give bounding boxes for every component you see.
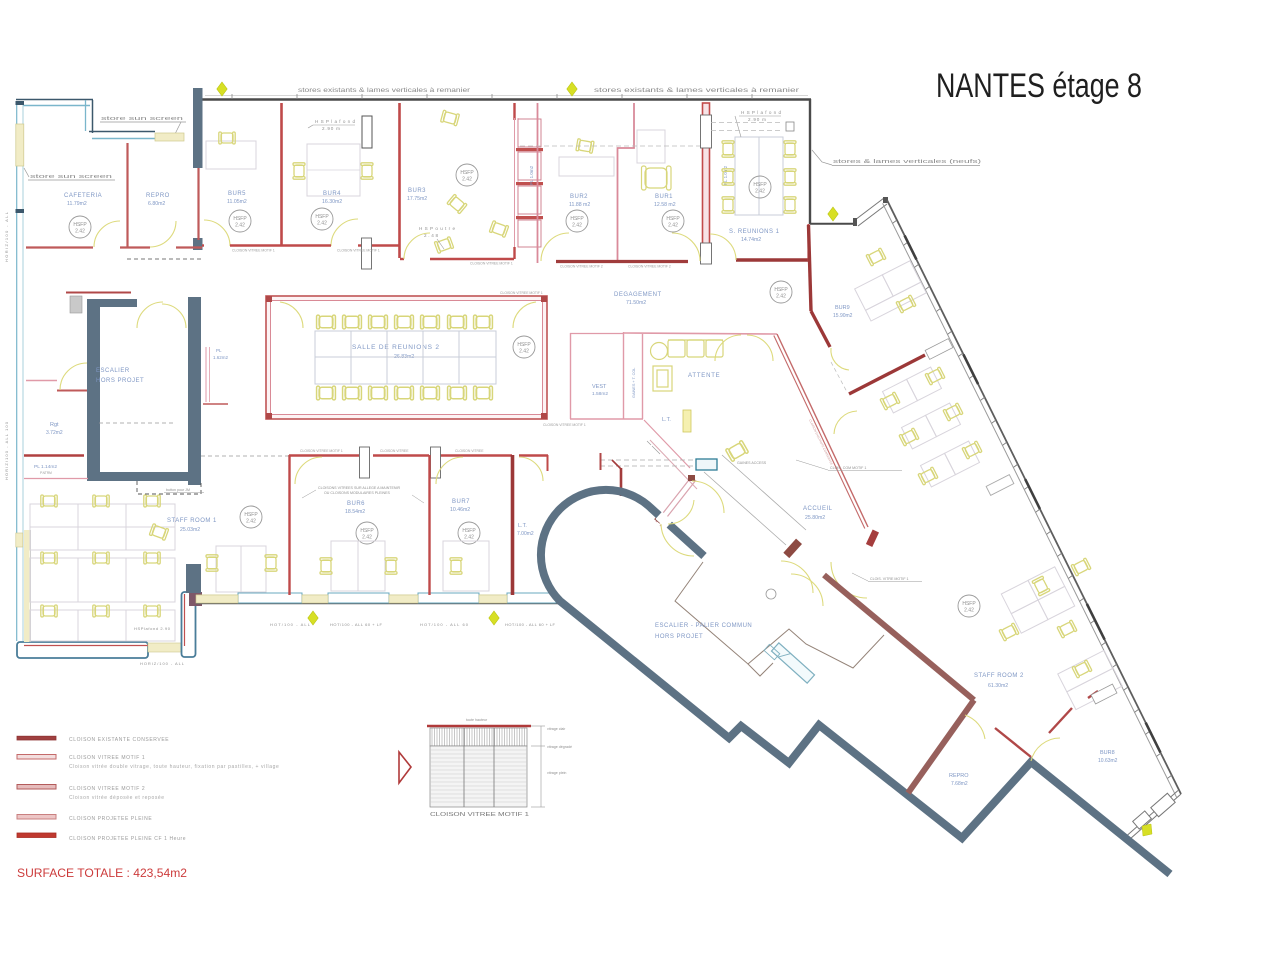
svg-text:HSPlafond 2.90: HSPlafond 2.90 [134,626,171,631]
svg-text:S. REUNIONS 1: S. REUNIONS 1 [729,229,780,235]
svg-text:61.30m2: 61.30m2 [988,683,1008,689]
svg-text:vitrage plein: vitrage plein [547,771,566,775]
svg-text:HOT/100 - ALL 60 + LF: HOT/100 - ALL 60 + LF [330,622,383,627]
svg-text:BUR9: BUR9 [835,305,850,311]
svg-text:REPRO: REPRO [146,193,170,199]
svg-text:CLOISON VITREE: CLOISON VITREE [380,449,409,453]
svg-text:1.62m2: 1.62m2 [213,355,229,360]
svg-text:PL: PL [216,348,222,353]
svg-text:CLOISON VITREE MOTIF 1: CLOISON VITREE MOTIF 1 [337,249,380,253]
svg-text:1.58m2: 1.58m2 [592,391,608,397]
svg-text:16.30m2: 16.30m2 [322,199,342,205]
svg-text:store sun screen: store sun screen [30,174,112,180]
svg-text:CLOISON VITREE MOTIF 2: CLOISON VITREE MOTIF 2 [560,265,603,269]
svg-text:15.90m2: 15.90m2 [833,313,853,319]
svg-text:STAFF ROOM 1: STAFF ROOM 1 [167,518,217,524]
svg-text:CLOISON EXISTANTE CONSERVEE: CLOISON EXISTANTE CONSERVEE [69,737,169,743]
svg-text:14.74m2: 14.74m2 [741,237,761,243]
svg-text:BUR5: BUR5 [228,191,246,197]
svg-text:Cloison vitrée déposée et repo: Cloison vitrée déposée et reposée [69,795,165,801]
svg-text:CLOISON VITREE: CLOISON VITREE [455,449,484,453]
svg-text:vitrage clair: vitrage clair [547,727,566,731]
svg-text:HOT/100 - ALL: HOT/100 - ALL [270,622,311,627]
svg-text:CLOISON VITREE MOTIF 1: CLOISON VITREE MOTIF 1 [232,249,275,253]
svg-text:25.03m2: 25.03m2 [180,527,200,533]
svg-text:BUR3: BUR3 [408,188,426,194]
svg-text:toute hauteur: toute hauteur [466,718,488,722]
svg-text:PL 1.14m2: PL 1.14m2 [34,464,57,470]
svg-text:CLOISON VITREE MOTIF 2: CLOISON VITREE MOTIF 2 [69,786,145,792]
svg-text:11.88 m2: 11.88 m2 [569,202,590,208]
svg-text:VEST: VEST [592,384,607,390]
svg-text:stores existants & lames verti: stores existants & lames verticales à re… [298,88,470,94]
svg-text:GAINES ACCESS: GAINES ACCESS [737,461,767,465]
svg-text:CLOISON VITREE MOTIF 1: CLOISON VITREE MOTIF 1 [500,291,543,295]
svg-text:BUR6: BUR6 [347,501,365,507]
svg-text:stores existants & lames verti: stores existants & lames verticales à re… [594,88,799,94]
svg-text:12.58 m2: 12.58 m2 [654,202,676,208]
svg-text:CLOISON VITREE MOTIF 1: CLOISON VITREE MOTIF 1 [69,755,145,761]
svg-text:11.05m2: 11.05m2 [227,199,247,205]
svg-text:HSPoutre: HSPoutre [419,226,455,231]
svg-text:CLOISONS VITREES SUR ALLEGE A: CLOISONS VITREES SUR ALLEGE A MAINTENIR [318,486,400,490]
svg-text:BUR7: BUR7 [452,499,470,505]
svg-text:HSPlafond: HSPlafond [741,110,781,115]
svg-text:CLOISON VITREE MOTIF 1: CLOISON VITREE MOTIF 1 [430,812,529,818]
svg-text:Cloison vitrée double vitrage,: Cloison vitrée double vitrage, toute hau… [69,764,279,770]
svg-text:REPRO: REPRO [949,773,969,779]
svg-text:7.68m2: 7.68m2 [951,781,968,787]
svg-text:BUR8: BUR8 [1100,750,1115,756]
svg-text:HORS PROJET: HORS PROJET [655,634,703,640]
svg-text:CLOISON VITREE MOTIF 1: CLOISON VITREE MOTIF 1 [543,423,586,427]
svg-text:stores & lames verticales (neu: stores & lames verticales (neufs) [833,159,981,165]
svg-text:Rgt: Rgt [50,422,59,428]
svg-text:6.80m2: 6.80m2 [148,201,165,207]
svg-text:ESCALIER - PALIER COMMUN: ESCALIER - PALIER COMMUN [655,623,752,629]
svg-text:HOT/100 - ALL 60 + LF: HOT/100 - ALL 60 + LF [505,622,556,627]
svg-text:18.54m2: 18.54m2 [345,509,365,515]
svg-text:11.79m2: 11.79m2 [67,201,87,207]
svg-text:10.63m2: 10.63m2 [1098,758,1118,764]
svg-text:CLOISON VITREE MOTIF 2: CLOISON VITREE MOTIF 2 [628,265,671,269]
svg-text:store sun screen: store sun screen [101,116,183,122]
svg-text:NANTES étage 8: NANTES étage 8 [936,67,1142,105]
svg-text:vitrage dégradé: vitrage dégradé [547,745,572,749]
svg-text:CLOISON VITREE MOTIF 1: CLOISON VITREE MOTIF 1 [300,449,343,453]
svg-text:PL 1.0m2: PL 1.0m2 [529,165,534,185]
svg-text:BUR1: BUR1 [655,194,673,200]
svg-text:CLOIS. VITRE MOTIF 1: CLOIS. VITRE MOTIF 1 [870,577,909,581]
svg-text:BUR2: BUR2 [570,194,588,200]
svg-text:button pour JM: button pour JM [166,488,190,492]
svg-text:3.72m2: 3.72m2 [46,430,63,436]
svg-text:OU CLOISONS MODULAIRES PLEINES: OU CLOISONS MODULAIRES PLEINES [324,491,391,495]
svg-text:HSPlafond: HSPlafond [315,119,355,124]
svg-text:17.75m2: 17.75m2 [407,196,427,202]
svg-text:CLOISON VITREE MOTIF 1: CLOISON VITREE MOTIF 1 [470,262,513,266]
svg-text:CLOIS. COM MOTIF 1: CLOIS. COM MOTIF 1 [830,466,866,470]
svg-text:CLOISON PROJETEE PLEINE CF 1 H: CLOISON PROJETEE PLEINE CF 1 Heure [69,836,186,842]
svg-text:ATTENTE: ATTENTE [688,373,721,379]
svg-text:HORIZ/100 - ALL 100: HORIZ/100 - ALL 100 [4,421,9,480]
svg-text:7.00m2: 7.00m2 [517,531,534,537]
svg-text:GAINES + T. COL: GAINES + T. COL [632,368,636,398]
svg-text:SALLE DE REUNIONS 2: SALLE DE REUNIONS 2 [352,344,440,351]
svg-text:ACCUEIL: ACCUEIL [803,506,833,512]
svg-text:25.80m2: 25.80m2 [805,515,825,521]
svg-text:2.90 m: 2.90 m [748,117,766,122]
svg-text:CAFETERIA: CAFETERIA [64,193,102,199]
svg-text:L.T.: L.T. [518,523,527,529]
svg-text:SURFACE TOTALE : 423,54m2: SURFACE TOTALE : 423,54m2 [17,868,187,880]
svg-text:HORIZ/100 - ALL: HORIZ/100 - ALL [140,661,185,666]
svg-text:HORS PROJET: HORS PROJET [96,378,144,384]
svg-text:ESCALIER: ESCALIER [96,368,130,374]
svg-text:71.50m2: 71.50m2 [626,300,646,306]
svg-text:2.90 m: 2.90 m [322,126,340,131]
svg-text:L.T.: L.T. [662,417,671,423]
svg-text:DEGAGEMENT: DEGAGEMENT [614,292,662,298]
svg-text:STAFF ROOM 2: STAFF ROOM 2 [974,673,1024,679]
svg-text:P.NTRM: P.NTRM [40,471,52,475]
svg-text:10.46m2: 10.46m2 [450,507,470,513]
svg-text:CLOISON PROJETEE PLEINE: CLOISON PROJETEE PLEINE [69,816,152,822]
